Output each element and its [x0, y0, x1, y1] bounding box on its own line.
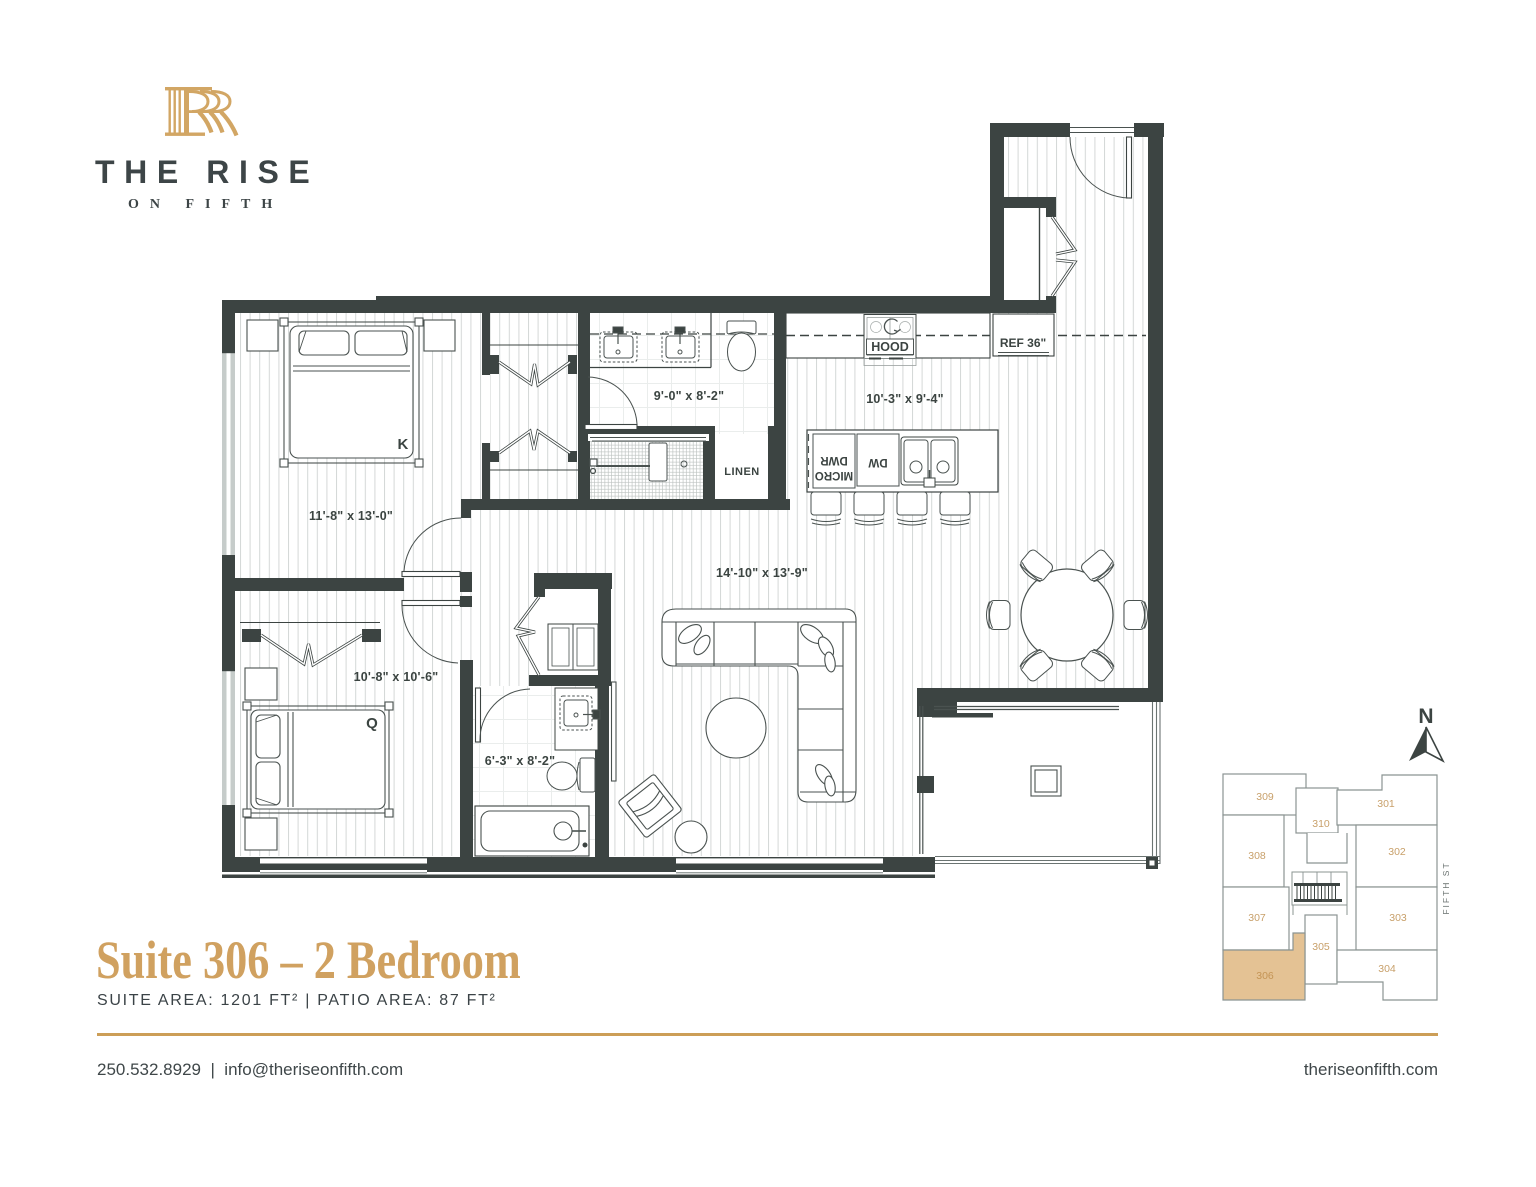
- svg-text:303: 303: [1389, 912, 1407, 924]
- svg-text:301: 301: [1377, 798, 1395, 810]
- svg-text:10'-3" x 9'-4": 10'-3" x 9'-4": [866, 392, 944, 406]
- svg-text:N: N: [1418, 705, 1433, 728]
- svg-text:307: 307: [1248, 912, 1266, 924]
- svg-text:305: 305: [1312, 941, 1330, 953]
- svg-text:REF 36": REF 36": [1000, 336, 1046, 350]
- svg-text:304: 304: [1378, 963, 1396, 975]
- svg-text:11'-8" x 13'-0": 11'-8" x 13'-0": [309, 509, 393, 523]
- svg-text:14'-10" x 13'-9": 14'-10" x 13'-9": [716, 566, 808, 580]
- svg-text:DWR: DWR: [820, 454, 848, 466]
- svg-text:FIFTH ST: FIFTH ST: [1441, 861, 1451, 914]
- svg-text:Q: Q: [366, 715, 378, 732]
- svg-text:K: K: [397, 436, 408, 453]
- svg-text:HOOD: HOOD: [871, 340, 909, 354]
- svg-text:306: 306: [1256, 970, 1274, 982]
- svg-text:10'-8" x 10'-6": 10'-8" x 10'-6": [354, 670, 439, 684]
- svg-text:309: 309: [1256, 791, 1274, 803]
- svg-text:LINEN: LINEN: [724, 466, 760, 478]
- svg-text:9'-0" x 8'-2": 9'-0" x 8'-2": [654, 389, 724, 403]
- svg-text:308: 308: [1248, 850, 1266, 862]
- svg-text:DW: DW: [868, 456, 887, 468]
- svg-text:310: 310: [1312, 818, 1330, 830]
- svg-text:6'-3" x 8'-2": 6'-3" x 8'-2": [485, 754, 555, 768]
- svg-text:MICRO: MICRO: [815, 469, 853, 481]
- svg-text:302: 302: [1388, 846, 1406, 858]
